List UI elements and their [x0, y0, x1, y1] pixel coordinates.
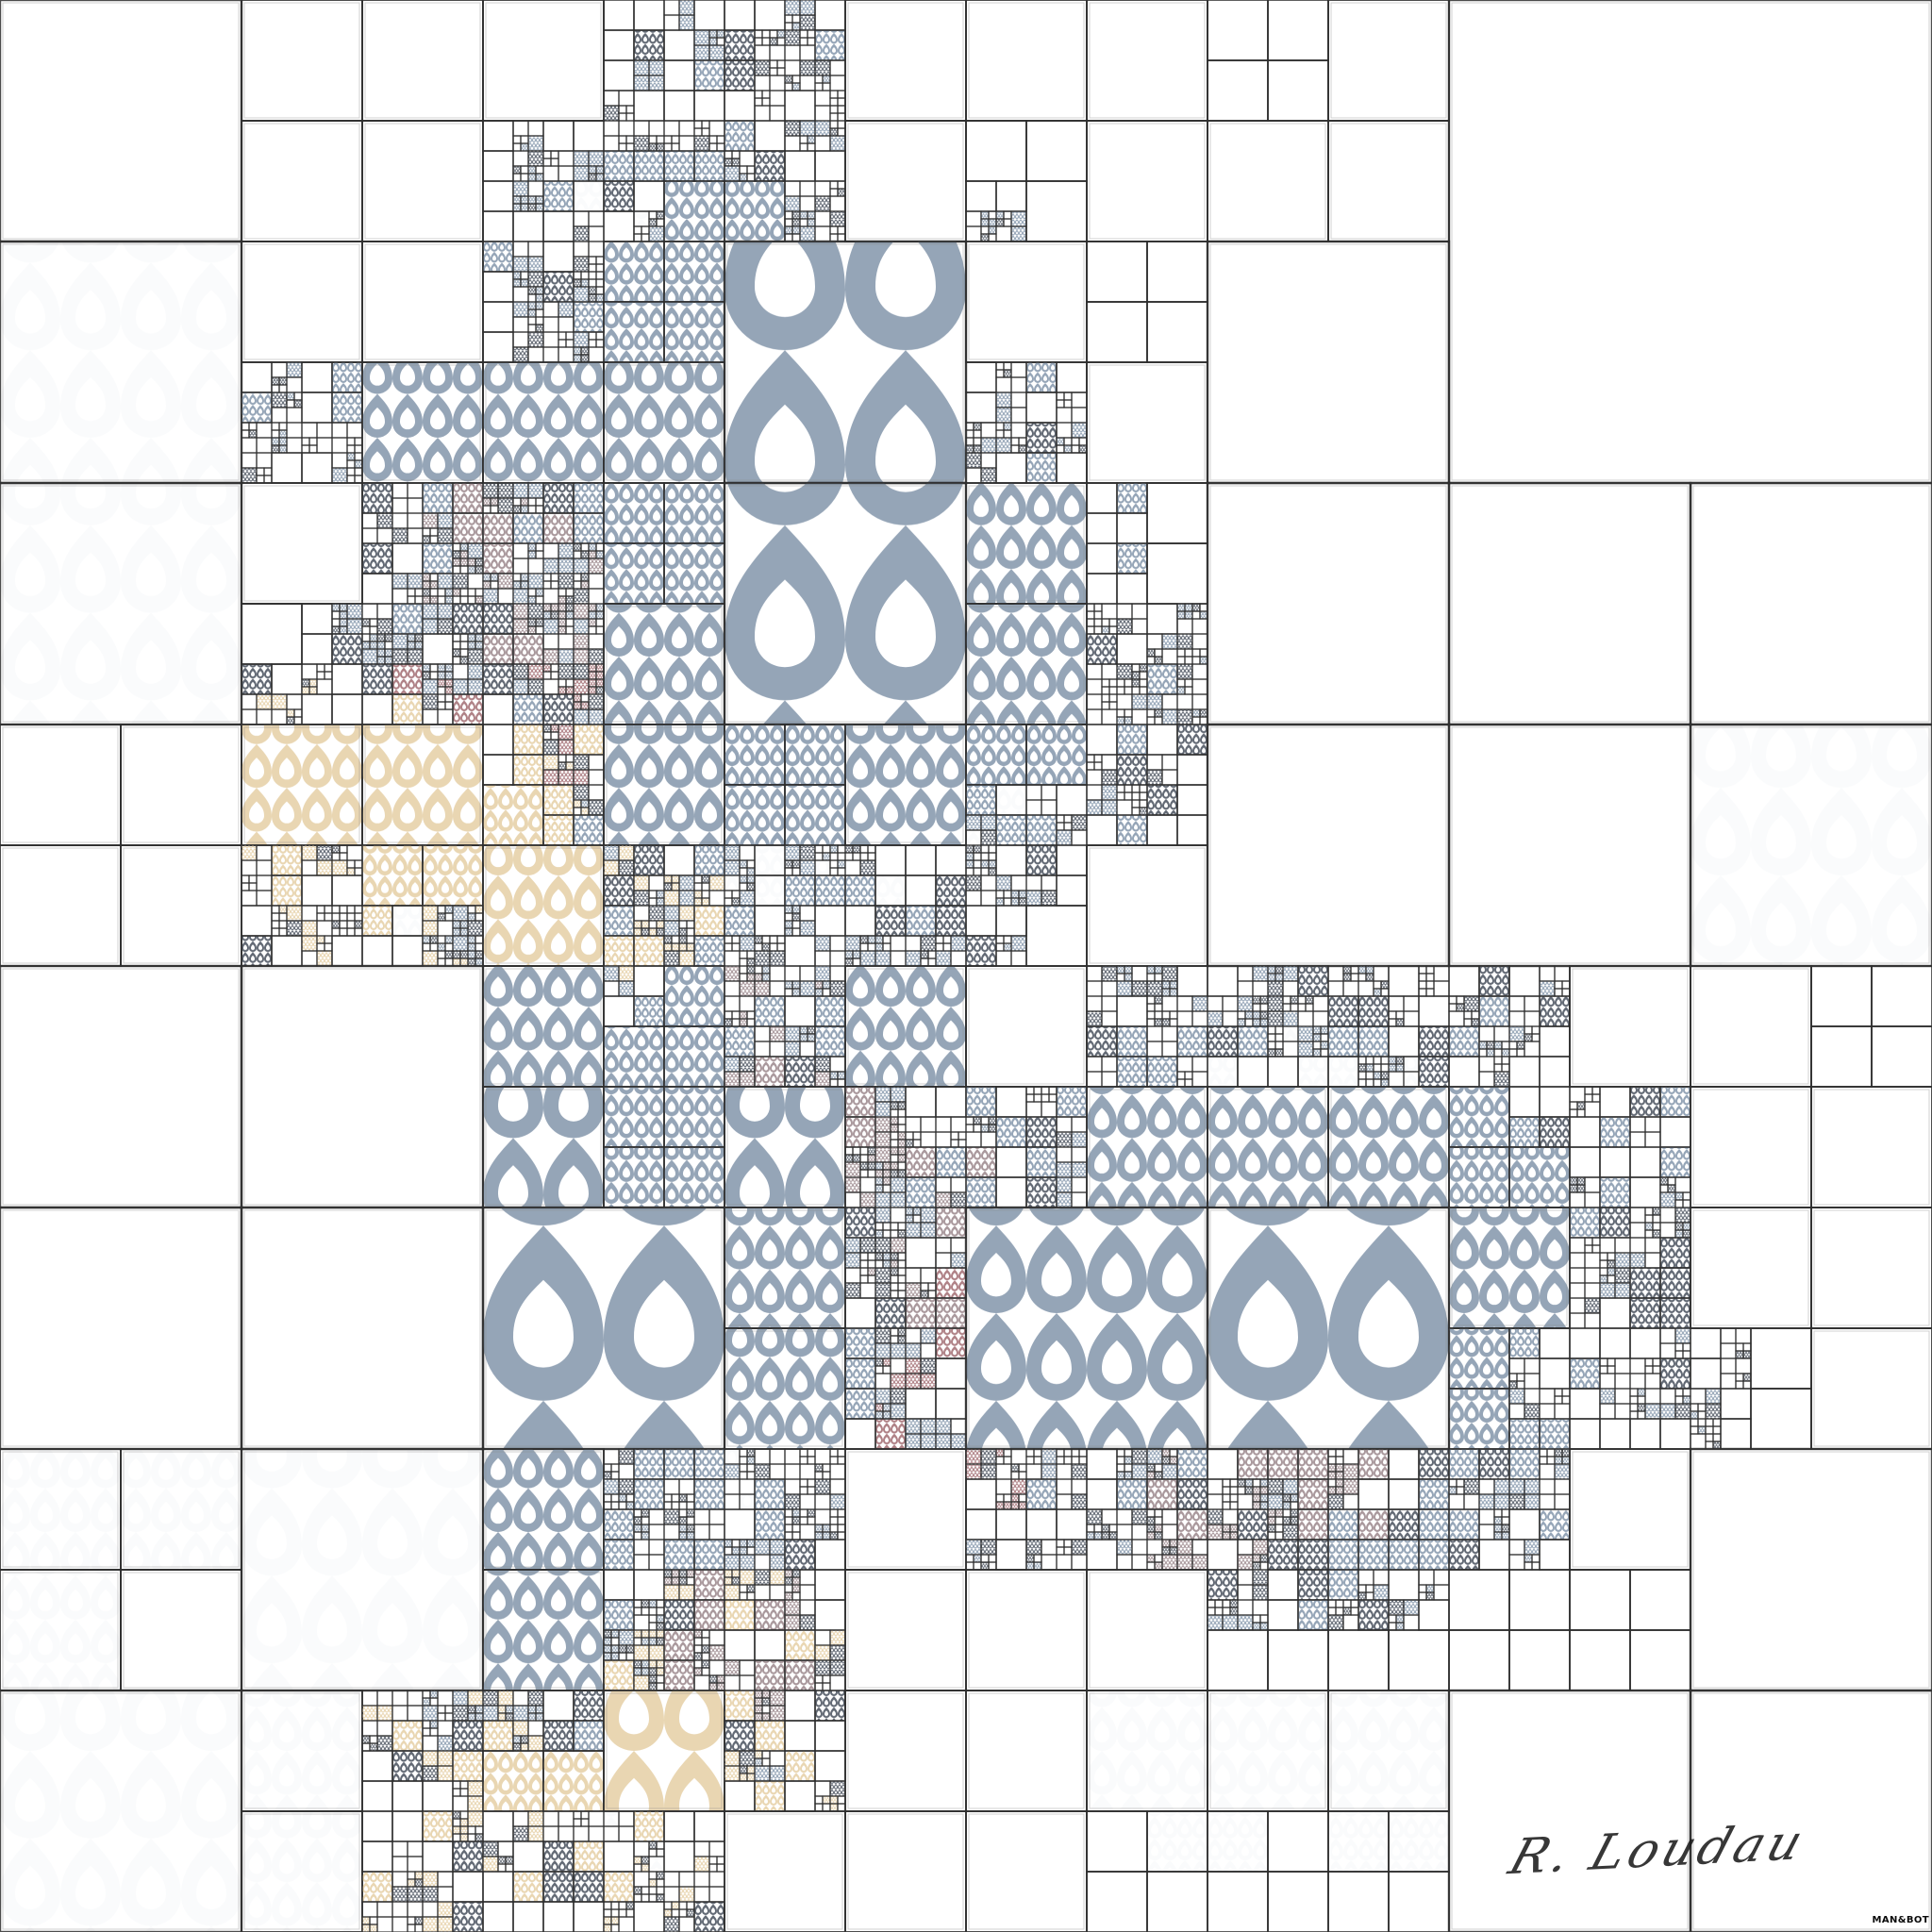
cell-border: [1057, 815, 1064, 823]
cell-border: [596, 543, 604, 551]
cell-border: [649, 898, 657, 906]
cell-border: [1026, 181, 1087, 241]
cell-border: [1207, 60, 1268, 121]
cell-fill: [558, 596, 566, 604]
cell-fill: [619, 1449, 634, 1464]
cell-border: [664, 1902, 672, 1909]
cell-fill: [1026, 891, 1041, 906]
cell-fill: [1026, 845, 1057, 875]
cell-border: [634, 1540, 649, 1555]
cell-fill: [370, 641, 377, 649]
cell-border: [1072, 1457, 1079, 1464]
cell-border: [1057, 1479, 1072, 1494]
cell-fill: [1185, 604, 1192, 611]
cell-border: [823, 989, 830, 996]
cell-fill: [634, 75, 649, 91]
cell-fill: [1419, 1540, 1449, 1570]
cell-border: [906, 1238, 936, 1268]
cell-border: [808, 1457, 815, 1464]
cell-border: [709, 1841, 724, 1857]
cell-border: [755, 1449, 770, 1464]
cell-border: [1192, 649, 1200, 657]
cell-fill: [574, 1690, 604, 1721]
cell-border: [332, 928, 340, 936]
cell-fill: [657, 1623, 664, 1630]
cell-border: [445, 1706, 453, 1713]
cell-border: [860, 1275, 868, 1283]
cell-border: [1479, 1509, 1494, 1524]
cell-border: [974, 438, 981, 445]
cell-fill: [1336, 1487, 1343, 1494]
cell-fill: [513, 581, 521, 589]
cell-border: [1275, 1524, 1283, 1532]
cell-border: [445, 913, 453, 921]
cell-border: [641, 226, 649, 234]
cell-border: [838, 1524, 845, 1532]
cell-fill: [513, 302, 528, 317]
cell-fill: [898, 1155, 906, 1162]
cell-fill: [392, 1887, 408, 1902]
cell-fill: [468, 641, 475, 649]
cell-fill: [792, 1585, 800, 1592]
cell-fill: [604, 906, 634, 936]
cell-fill: [528, 166, 536, 174]
cell-fill: [891, 1238, 906, 1253]
cell-fill: [279, 377, 287, 385]
cell-border: [1396, 1011, 1404, 1019]
cell-border: [1087, 619, 1094, 626]
cell-border: [838, 113, 845, 121]
cell-border: [309, 445, 317, 453]
cell-border: [1600, 1268, 1607, 1275]
cell-border: [657, 1879, 664, 1887]
cell-border: [785, 966, 800, 981]
cell-fill: [483, 1857, 498, 1872]
cell-border: [694, 121, 702, 128]
cell-border: [770, 1449, 785, 1464]
cell-fill: [1343, 974, 1351, 981]
cell-fill: [845, 1155, 853, 1162]
cell-border: [1675, 1389, 1683, 1396]
cell-border: [1607, 1275, 1615, 1283]
cell-fill: [792, 219, 800, 226]
cell-border: [1207, 966, 1238, 996]
cell-fill: [408, 634, 415, 641]
cell-fill: [1374, 989, 1381, 996]
cell-fill: [875, 1411, 883, 1419]
cell-border: [1811, 1087, 1932, 1207]
cell-border: [1419, 996, 1449, 1026]
cell-border: [1155, 1555, 1162, 1562]
cell-border: [1494, 1064, 1502, 1072]
cell-border: [898, 1253, 906, 1260]
cell-fill: [724, 1464, 740, 1479]
cell-fill: [468, 543, 483, 558]
artist-signature: R. Loudau: [1488, 1808, 1932, 1932]
cell-border: [513, 498, 521, 506]
cell-fill: [875, 1230, 883, 1238]
cell-border: [1683, 1343, 1690, 1351]
cell-fill: [679, 1887, 694, 1902]
cell-fill: [875, 1147, 891, 1162]
cell-fill: [528, 302, 536, 309]
cell-border: [1419, 1592, 1426, 1600]
cell-fill: [581, 574, 589, 581]
cell-fill: [536, 302, 543, 309]
cell-border: [1147, 709, 1155, 717]
cell-fill: [453, 951, 460, 958]
cell-border: [966, 362, 996, 392]
cell-border: [996, 362, 1004, 370]
cell-fill: [513, 724, 543, 755]
cell-border: [1555, 981, 1562, 989]
cell-border: [1592, 1094, 1600, 1102]
cell-fill: [558, 724, 574, 740]
cell-border: [1102, 755, 1117, 770]
cell-border: [370, 619, 377, 626]
cell-fill: [649, 1668, 657, 1675]
cell-fill: [755, 1751, 762, 1758]
cell-fill: [966, 445, 974, 453]
cell-border: [634, 966, 664, 996]
cell-fill: [664, 875, 672, 883]
cell-border: [815, 1509, 830, 1524]
cell-border: [906, 1389, 936, 1419]
cell-border: [121, 845, 241, 966]
cell-fill: [1275, 1509, 1283, 1517]
cell-border: [574, 121, 604, 151]
cell-border: [1207, 121, 1328, 241]
cell-fill: [875, 1343, 891, 1358]
cell-fill: [1072, 815, 1087, 830]
cell-fill: [513, 694, 543, 724]
cell-fill: [868, 936, 875, 943]
cell-fill: [815, 966, 830, 981]
cell-border: [1660, 1207, 1675, 1223]
cell-border: [551, 672, 558, 679]
cell-fill: [1298, 1026, 1313, 1041]
cell-fill: [1207, 1509, 1223, 1524]
cell-fill: [785, 1570, 792, 1577]
cell-fill: [664, 891, 679, 906]
cell-fill: [1607, 1260, 1615, 1268]
cell-fill: [513, 619, 528, 634]
cell-border: [1600, 1147, 1630, 1177]
cell-border: [1449, 1570, 1509, 1630]
cell-fill: [241, 1449, 483, 1690]
cell-fill: [1102, 785, 1117, 800]
cell-fill: [1283, 1479, 1298, 1494]
cell-border: [332, 611, 340, 619]
cell-border: [1230, 1494, 1238, 1502]
cell-border: [1736, 1381, 1743, 1389]
cell-border: [664, 1479, 679, 1494]
cell-fill: [1555, 1464, 1570, 1479]
cell-border: [1087, 483, 1117, 513]
cell-border: [785, 1479, 800, 1494]
cell-border: [438, 709, 453, 724]
cell-fill: [460, 928, 468, 936]
cell-border: [1615, 1389, 1630, 1404]
cell-fill: [755, 1540, 770, 1555]
cell-border: [641, 1607, 649, 1615]
cell-border: [1057, 875, 1087, 906]
cell-fill: [1268, 1524, 1275, 1532]
cell-border: [438, 694, 445, 702]
cell-border: [853, 1147, 860, 1155]
cell-fill: [1011, 1502, 1019, 1509]
cell-border: [287, 408, 302, 423]
cell-fill: [860, 1238, 875, 1253]
cell-fill: [649, 1630, 657, 1638]
cell-border: [543, 672, 551, 679]
cell-border: [664, 136, 672, 143]
cell-border: [543, 347, 558, 362]
cell-border: [1645, 1238, 1660, 1253]
cell-border: [1389, 1630, 1449, 1690]
cell-fill: [1132, 981, 1147, 996]
cell-fill: [649, 1660, 657, 1668]
cell-border: [755, 91, 762, 98]
cell-fill: [408, 1879, 415, 1887]
cell-border: [1645, 1117, 1660, 1132]
cell-fill: [1011, 1479, 1026, 1494]
cell-fill: [875, 1358, 883, 1366]
cell-border: [1540, 1057, 1570, 1087]
cell-fill: [785, 226, 792, 234]
cell-fill: [1366, 1072, 1374, 1079]
cell-fill: [604, 543, 664, 604]
cell-fill: [845, 1177, 860, 1192]
cell-border: [838, 1449, 845, 1457]
cell-fill: [1449, 1147, 1509, 1207]
cell-fill: [792, 1570, 800, 1577]
cell-border: [1238, 1057, 1268, 1087]
cell-border: [724, 91, 755, 121]
cell-border: [1630, 1570, 1690, 1630]
cell-border: [596, 626, 604, 634]
cell-border: [974, 860, 981, 868]
cell-border: [1087, 996, 1102, 1011]
cell-border: [845, 1298, 875, 1328]
cell-fill: [1268, 1049, 1275, 1057]
cell-fill: [528, 483, 543, 498]
cell-border-sketch: [848, 3, 963, 118]
cell-border-sketch: [727, 1814, 842, 1929]
cell-fill: [657, 143, 664, 151]
cell-border: [981, 1132, 996, 1147]
cell-fill: [853, 951, 860, 958]
cell-border: [830, 1675, 845, 1690]
cell-border: [619, 1909, 626, 1917]
cell-fill: [619, 860, 634, 875]
cell-border: [332, 913, 340, 921]
cell-border: [717, 143, 724, 151]
cell-border: [453, 1796, 468, 1811]
cell-fill: [966, 1087, 996, 1117]
cell-border: [272, 453, 302, 483]
cell-border: [1124, 687, 1132, 694]
cell-fill: [543, 815, 574, 845]
cell-border: [664, 0, 679, 15]
cell-fill: [981, 860, 989, 868]
cell-border: [1585, 1245, 1592, 1253]
cell-border: [906, 1117, 921, 1132]
cell-fill: [528, 136, 543, 151]
cell-border: [1607, 1366, 1615, 1374]
cell-border: [1419, 989, 1426, 996]
cell-fill: [838, 860, 845, 868]
cell-fill: [1660, 1238, 1690, 1268]
cell-fill: [362, 483, 392, 513]
cell-fill: [1524, 1034, 1532, 1041]
cell-border: [906, 936, 921, 951]
cell-border: [1419, 974, 1426, 981]
cell-border: [257, 475, 264, 483]
cell-border: [347, 438, 355, 445]
cell-fill: [891, 1117, 898, 1124]
cell-border: [657, 219, 664, 226]
cell-fill: [1540, 1117, 1570, 1147]
cell-fill: [604, 1645, 611, 1653]
cell-fill: [1683, 1396, 1690, 1404]
cell-border: [392, 1811, 423, 1841]
cell-border: [1102, 687, 1109, 694]
cell-border: [815, 1683, 823, 1690]
cell-border: [1238, 1600, 1253, 1615]
cell-border: [453, 634, 460, 641]
cell-border: [241, 906, 272, 936]
cell-border: [294, 392, 302, 400]
cell-border: [1004, 219, 1011, 226]
cell-fill: [528, 543, 536, 551]
cell-border: [1004, 1494, 1011, 1502]
cell-fill: [860, 1162, 868, 1170]
cell-border: [241, 1207, 483, 1449]
cell-border: [815, 1494, 830, 1509]
cell-border: [438, 702, 445, 709]
cell-fill: [468, 958, 475, 966]
cell-border-sketch: [244, 124, 359, 239]
cell-border: [362, 121, 483, 241]
cell-border: [1366, 1585, 1374, 1592]
cell-fill: [1419, 1026, 1449, 1057]
cell-fill: [724, 1555, 740, 1570]
cell-border: [1087, 845, 1207, 966]
cell-border: [619, 91, 634, 106]
cell-border-sketch: [969, 969, 1084, 1084]
cell-border-sketch: [1573, 969, 1688, 1084]
cell-fill: [868, 1155, 875, 1162]
cell-fill: [1102, 1532, 1109, 1540]
cell-fill: [785, 1751, 815, 1781]
cell-border: [1381, 989, 1389, 996]
cell-border: [340, 845, 347, 853]
cell-fill: [377, 513, 392, 528]
cell-border: [1049, 1094, 1057, 1102]
cell-fill: [891, 1343, 906, 1358]
cell-border: [543, 732, 551, 740]
cell-fill: [830, 1494, 845, 1509]
cell-border: [611, 1638, 619, 1645]
cell-fill: [1675, 1230, 1683, 1238]
cell-fill: [604, 1087, 664, 1147]
cell-fill: [1283, 1517, 1291, 1524]
cell-border: [1524, 1011, 1540, 1026]
cell-border: [543, 543, 558, 558]
cell-border: [732, 1011, 740, 1019]
cell-fill: [634, 151, 664, 181]
cell-fill: [377, 1706, 392, 1721]
cell-fill: [649, 1600, 657, 1607]
cell-border: [604, 1902, 611, 1909]
cell-border: [755, 30, 762, 38]
cell-border: [755, 0, 785, 30]
cell-border: [1268, 1600, 1298, 1630]
cell-fill: [755, 151, 785, 181]
cell-fill: [423, 1872, 438, 1887]
cell-fill: [1607, 1268, 1615, 1275]
cell-fill: [883, 1404, 891, 1411]
cell-border: [785, 45, 800, 60]
cell-border: [740, 166, 747, 174]
cell-border: [1600, 1298, 1630, 1328]
cell-border: [1562, 1389, 1570, 1396]
cell-fill: [362, 906, 392, 936]
cell-fill: [423, 906, 438, 921]
cell-border: [1192, 657, 1200, 664]
cell-fill: [1328, 1570, 1358, 1600]
cell-border: [996, 1147, 1026, 1177]
cell-fill: [536, 589, 543, 596]
cell-fill: [317, 951, 332, 966]
cell-border: [1683, 1389, 1690, 1396]
cell-fill: [596, 611, 604, 619]
cell-border: [1162, 1026, 1177, 1041]
cell-fill: [1283, 1502, 1291, 1509]
cell-border: [649, 891, 657, 898]
cell-fill: [460, 551, 468, 558]
cell-fill: [785, 1615, 800, 1630]
cell-fill: [792, 1577, 800, 1585]
cell-border: [1389, 1449, 1419, 1479]
cell-fill: [664, 1026, 724, 1087]
cell-fill: [996, 1502, 1004, 1509]
cell-fill: [491, 574, 498, 581]
cell-border: [1630, 1117, 1645, 1132]
cell-fill: [1155, 1532, 1162, 1540]
cell-border: [392, 936, 423, 966]
cell-fill: [1494, 1517, 1502, 1524]
cell-fill: [392, 528, 408, 543]
cell-fill: [657, 136, 664, 143]
cell-fill: [1177, 1540, 1192, 1555]
cell-border: [792, 928, 800, 936]
cell-border: [272, 362, 287, 377]
cell-border: [1094, 619, 1102, 626]
cell-fill: [785, 121, 800, 136]
cell-border: [574, 211, 589, 226]
cell-border: [619, 143, 626, 151]
cell-border: [800, 1524, 815, 1540]
cell-fill: [1479, 1041, 1487, 1049]
cell-fill: [740, 1464, 747, 1472]
cell-fill: [1306, 996, 1313, 1004]
cell-fill: [634, 1517, 641, 1524]
cell-border: [1675, 1351, 1683, 1358]
cell-border: [325, 943, 332, 951]
cell-fill: [423, 1706, 438, 1721]
